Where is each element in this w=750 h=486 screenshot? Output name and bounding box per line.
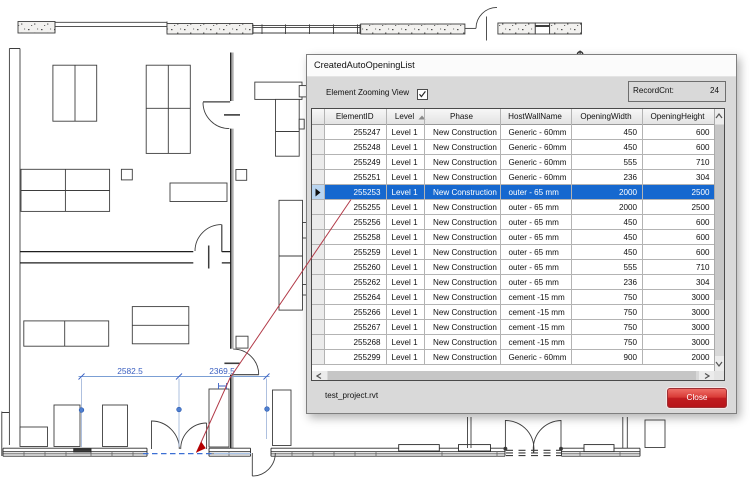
svg-text:2582.5: 2582.5: [117, 366, 143, 376]
svg-text:2369.5: 2369.5: [209, 366, 235, 376]
